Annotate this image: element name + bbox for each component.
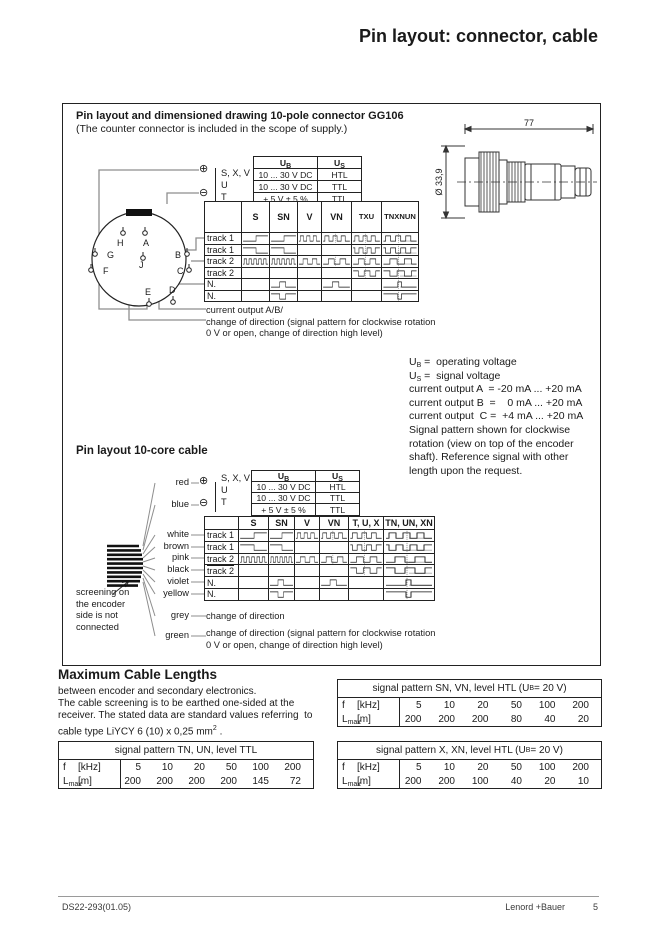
length-value: 40 (501, 774, 535, 788)
waveform-cell (382, 256, 419, 268)
title-text: signal pattern X, XN, level HTL (U (376, 745, 526, 756)
track-row-text: N. (207, 279, 216, 289)
waveform (295, 577, 319, 588)
footer-brand: Lenord +Bauer (505, 902, 565, 912)
wire-label: white (123, 529, 189, 539)
waveform (270, 291, 297, 302)
waveform (384, 577, 434, 588)
legend-line: shaft). Reference signal with other (409, 451, 583, 465)
waveform (269, 577, 294, 588)
power-cell: 10 ... 30 V DC (252, 493, 316, 504)
waveform (295, 554, 319, 565)
waveform-cell (239, 554, 269, 566)
waveform-cell (384, 530, 435, 542)
waveform (382, 245, 418, 256)
length-value: 200 (185, 774, 217, 788)
freq-row-label: f[kHz] (338, 760, 400, 774)
power-signal-labels: S, X, VUT (221, 472, 250, 508)
waveform (322, 291, 351, 302)
paragraph-line: receiver. The stated data are standard v… (58, 710, 312, 722)
waveform-cell (270, 291, 298, 303)
waveform (298, 291, 321, 302)
pin-contact (187, 268, 192, 273)
wire-label: blue (123, 499, 189, 509)
waveform-cell (384, 554, 435, 566)
waveform-cell (242, 233, 270, 245)
waveform-cell (295, 542, 320, 554)
legend-line: Signal pattern shown for clockwise (409, 424, 583, 438)
freq-value: 5 (121, 760, 153, 774)
pin-label: E (145, 287, 151, 297)
waveform (352, 256, 381, 267)
power-cell: 10 ... 30 V DC (252, 482, 316, 493)
datasheet-page: Pin layout: connector, cable Pin layout … (0, 0, 662, 936)
waveform-cell (242, 245, 270, 257)
length-value: 20 (534, 774, 568, 788)
pin-contact (185, 252, 190, 257)
waveform-cell (382, 245, 419, 257)
footer-page-number: 5 (593, 902, 598, 912)
waveform-cell (384, 542, 435, 554)
freq-table-body: f[kHz]5102050100200Lmax[m]20020020080402… (338, 698, 601, 726)
waveform-cell (269, 565, 295, 577)
waveform (352, 245, 381, 256)
waveform (242, 268, 269, 279)
waveform-cell (298, 291, 322, 303)
waveform-cell (320, 565, 349, 577)
waveform-cell (270, 268, 298, 280)
paragraph-text: between encoder and secondary electronic… (58, 686, 256, 697)
length-value: 200 (217, 774, 249, 788)
freq-value: 5 (400, 698, 434, 712)
screening-line: the encoder (76, 599, 129, 611)
waveform (295, 542, 319, 553)
row-symbol: f (342, 762, 357, 773)
symbol: f (63, 762, 66, 773)
symbol: U (409, 356, 417, 368)
waveform-cell (295, 589, 320, 601)
freq-value: 200 (568, 698, 602, 712)
plus-terminal-icon: ⊕ (199, 164, 208, 175)
legend-text: = signal voltage (421, 370, 500, 382)
power-signal-label: S, X, V (221, 472, 250, 484)
length-value: 72 (281, 774, 313, 788)
waveform-cell (382, 291, 419, 303)
waveform (298, 279, 321, 290)
row-symbol-text: f (63, 762, 66, 773)
legend-text: current output B = 0 mA ... +20 mA (409, 397, 582, 409)
length-value: 200 (434, 712, 468, 726)
title-text: signal pattern SN, VN, level HTL (U (372, 683, 529, 694)
wire-label: red (123, 477, 189, 487)
paragraph-text: receiver. The stated data are standard v… (58, 710, 312, 721)
pin-label: B (175, 250, 181, 260)
track-row-label: N. (205, 577, 239, 589)
row-unit: [m] (357, 714, 371, 725)
waveform-cell (349, 554, 384, 566)
waveform (295, 589, 319, 600)
waveform-cell (349, 530, 384, 542)
track-row-text: N. (207, 291, 216, 301)
pin-contact (93, 252, 98, 257)
freq-value: 100 (249, 760, 281, 774)
waveform (384, 530, 434, 541)
length-value: 200 (400, 774, 434, 788)
waveform-cell (322, 245, 352, 257)
row-unit: [m] (357, 776, 371, 787)
legend-text: current output C = +4 mA ... +20 mA (409, 410, 583, 422)
waveform-cell (298, 268, 322, 280)
power-signal-label: U (221, 179, 250, 191)
waveform-cell (269, 589, 295, 601)
footer-rule (58, 896, 599, 897)
length-value: 200 (400, 712, 434, 726)
waveform-cell (242, 268, 270, 280)
power-cell: 10 ... 30 V DC (254, 181, 318, 193)
signal-table-cable: SSNVVNT, U, XTN, UN, XNtrack 1track 1tra… (204, 516, 435, 601)
freq-table-body: f[kHz]5102050100200Lmax[m]20020020020014… (59, 760, 313, 788)
waveform-cell (352, 291, 382, 303)
power-table: UBUS10 ... 30 V DCHTL10 ... 30 V DCTTL+ … (251, 470, 360, 516)
signal-column-header: TN, UN, XN (384, 517, 435, 530)
power-header-cell: UB (252, 471, 316, 482)
voltage-symbol: US (332, 471, 343, 481)
waveform (322, 268, 351, 279)
waveform (242, 279, 269, 290)
waveform-cell (352, 233, 382, 245)
waveform-cell (322, 233, 352, 245)
screening-line: side is not (76, 610, 129, 622)
waveform-cell (352, 256, 382, 268)
waveform-cell (269, 554, 295, 566)
track-row-label: track 2 (205, 268, 242, 280)
pin-contact (171, 300, 176, 305)
waveform-cell (270, 245, 298, 257)
freq-value: 20 (467, 760, 501, 774)
waveform (269, 589, 294, 600)
signal-corner (205, 517, 239, 530)
freq-row-label: f[kHz] (59, 760, 121, 774)
row-unit: [kHz] (78, 762, 101, 773)
screening-line: screening on (76, 587, 129, 599)
waveform-cell (239, 542, 269, 554)
track-row-text: track 1 (207, 245, 234, 255)
legend-line: rotation (view on top of the encoder (409, 438, 583, 452)
signal-column-header: VN (322, 202, 352, 233)
waveform (384, 554, 434, 565)
signal-column-header: S (239, 517, 269, 530)
waveform-cell (322, 268, 352, 280)
waveform (298, 256, 321, 267)
waveform-cell (270, 233, 298, 245)
header-line: UN (405, 213, 416, 221)
paragraph-line: cable type LiYCY 6 (10) x 0,25 mm2 . (58, 723, 312, 739)
waveform (298, 233, 321, 244)
waveform-cell (320, 577, 349, 589)
paragraph-text: cable type LiYCY 6 (10) x 0,25 mm (58, 726, 213, 737)
waveform (384, 565, 434, 576)
waveform-cell (320, 589, 349, 601)
waveform-cell (239, 589, 269, 601)
waveform-cell (384, 589, 435, 601)
cable-drawing (105, 542, 145, 590)
minus-terminal-icon: ⊖ (199, 498, 208, 509)
paragraph-text: The cable screening is to be earthed one… (58, 698, 294, 709)
waveform (320, 577, 348, 588)
waveform-cell (349, 565, 384, 577)
pin-label: J (139, 260, 144, 270)
waveform (270, 245, 297, 256)
waveform (349, 554, 383, 565)
signal-column-header: TNXNUN (382, 202, 419, 233)
waveform (382, 291, 418, 302)
pin-label: C (177, 266, 184, 276)
waveform (242, 291, 269, 302)
waveform (239, 565, 268, 576)
note-line: change of direction (signal pattern for … (206, 317, 435, 329)
waveform-cell (384, 577, 435, 589)
freq-value: 100 (534, 698, 568, 712)
waveform-cell (295, 577, 320, 589)
waveform (322, 245, 351, 256)
waveform (349, 589, 383, 600)
orientation-mark (126, 209, 152, 216)
signal-column-header: SN (269, 517, 295, 530)
waveform (382, 256, 418, 267)
legend-text: Signal pattern shown for clockwise (409, 424, 570, 436)
connector-notes: current output A/B/change of direction (… (206, 305, 435, 340)
waveform (239, 577, 268, 588)
waveform-cell (239, 530, 269, 542)
length-value: 10 (568, 774, 602, 788)
freq-value: 10 (434, 698, 468, 712)
track-row-label: N. (205, 279, 242, 291)
cable-note-green: change of direction (signal pattern for … (206, 628, 435, 651)
signal-column-header: T, U, X (349, 517, 384, 530)
wire-label: grey (123, 610, 189, 620)
length-value: 80 (501, 712, 535, 726)
waveform (320, 589, 348, 600)
track-row-text: track 2 (207, 566, 234, 576)
row-symbol: Lmax (342, 714, 357, 725)
voltage-symbol: US (334, 158, 345, 168)
legend-line: UB = operating voltage (409, 356, 583, 370)
waveform-cell (320, 542, 349, 554)
track-row-label: track 1 (205, 542, 239, 554)
legend-text: current output A = -20 mA ... +20 mA (409, 383, 582, 395)
track-row-text: track 2 (207, 268, 234, 278)
waveform (295, 565, 319, 576)
waveform (352, 233, 381, 244)
waveform (349, 577, 383, 588)
freq-row-label: Lmax[m] (338, 774, 400, 788)
title-text: = 20 V) (530, 745, 563, 756)
track-row-text: track 1 (207, 233, 234, 243)
paragraph-tail: . (217, 726, 223, 737)
track-row-text: track 2 (207, 554, 234, 564)
waveform (382, 233, 418, 244)
track-row-label: track 1 (205, 530, 239, 542)
waveform-cell (298, 245, 322, 257)
legend-line: current output B = 0 mA ... +20 mA (409, 397, 583, 411)
power-header-cell: UB (254, 157, 318, 169)
paragraph-line: The cable screening is to be earthed one… (58, 698, 312, 710)
track-row-label: N. (205, 589, 239, 601)
waveform-cell (298, 256, 322, 268)
length-value: 200 (467, 712, 501, 726)
voltage-symbol: UB (409, 356, 421, 368)
waveform (352, 291, 381, 302)
waveform-cell (382, 279, 419, 291)
track-row-label: N. (205, 291, 242, 303)
freq-value: 200 (281, 760, 313, 774)
cable-note-grey: change of direction (206, 611, 285, 623)
waveform-cell (270, 279, 298, 291)
power-table: UBUS10 ... 30 V DCHTL10 ... 30 V DCTTL+ … (253, 156, 362, 206)
freq-row-label: Lmax[m] (59, 774, 121, 788)
voltage-symbol: UB (278, 471, 289, 481)
track-row-text: track 2 (207, 256, 234, 266)
signal-column-header: SN (270, 202, 298, 233)
waveform (269, 554, 294, 565)
track-row-label: track 2 (205, 565, 239, 577)
track-row-text: N. (207, 578, 216, 588)
waveform-cell (242, 291, 270, 303)
legend-line: current output A = -20 mA ... +20 mA (409, 383, 583, 397)
row-unit: [kHz] (357, 700, 380, 711)
waveform-cell (242, 256, 270, 268)
freq-value: 100 (534, 760, 568, 774)
waveform-cell (295, 530, 320, 542)
note-line: 0 V or open, change of direction high le… (206, 328, 435, 340)
header-line: TN (384, 213, 394, 221)
freq-row-label: f[kHz] (338, 698, 400, 712)
legend-text: shaft). Reference signal with other (409, 451, 568, 463)
waveform (349, 565, 383, 576)
waveform (270, 233, 297, 244)
pin-label: H (117, 238, 124, 248)
row-unit: [m] (78, 776, 92, 787)
length-value: 20 (568, 712, 602, 726)
waveform (242, 256, 269, 267)
waveform-cell (239, 577, 269, 589)
voltage-symbol: US (409, 370, 421, 382)
pin-contact (141, 256, 146, 261)
screening-line: connected (76, 622, 129, 634)
wire-label: green (123, 630, 189, 640)
freq-value: 10 (434, 760, 468, 774)
freq-value: 5 (400, 760, 434, 774)
waveform (270, 256, 297, 267)
paragraph-line: between encoder and secondary electronic… (58, 686, 312, 698)
waveform (382, 268, 418, 279)
footer-doc-number: DS22-293(01.05) (62, 902, 131, 912)
row-symbol-text: f (342, 700, 345, 711)
waveform (239, 530, 268, 541)
freq-value: 50 (501, 698, 535, 712)
cable-heading: Pin layout 10-core cable (76, 445, 208, 457)
screening-note: screening onthe encoderside is notconnec… (76, 587, 129, 633)
waveform (270, 279, 297, 290)
track-row-label: track 1 (205, 245, 242, 257)
power-signal-label: U (221, 484, 250, 496)
row-symbol: f (63, 762, 78, 773)
signal-column-header: VN (320, 517, 349, 530)
power-cell: + 5 V ± 5 % (252, 504, 316, 515)
waveform (298, 268, 321, 279)
freq-table-title: signal pattern X, XN, level HTL (UB= 20 … (338, 742, 601, 760)
header-line: XN (394, 213, 405, 221)
waveform-cell (352, 279, 382, 291)
waveform-cell (352, 245, 382, 257)
power-signal-labels: S, X, VUT (221, 167, 250, 203)
waveform (384, 542, 434, 553)
pin-contact (121, 231, 126, 236)
waveform (352, 268, 381, 279)
legend-block: UB = operating voltageUS = signal voltag… (409, 356, 583, 478)
note-line: current output A/B/ (206, 305, 435, 317)
freq-value: 50 (501, 760, 535, 774)
waveform (239, 589, 268, 600)
waveform (322, 279, 351, 290)
freq-table-tn-un: signal pattern TN, UN, level TTLf[kHz]51… (58, 741, 314, 789)
waveform (270, 268, 297, 279)
freq-value: 10 (153, 760, 185, 774)
waveform (320, 542, 348, 553)
row-unit: [kHz] (357, 762, 380, 773)
waveform (384, 589, 434, 600)
pin-diagram: HAGBFCEDJ (77, 202, 193, 314)
waveform-cell (322, 279, 352, 291)
row-symbol: Lmax (63, 776, 78, 787)
row-symbol: Lmax (342, 776, 357, 787)
waveform-cell (298, 233, 322, 245)
freq-table-title: signal pattern TN, UN, level TTL (59, 742, 313, 760)
waveform (320, 530, 348, 541)
waveform-cell (270, 256, 298, 268)
row-symbol: f (342, 700, 357, 711)
freq-table-title: signal pattern SN, VN, level HTL (UB= 20… (338, 680, 601, 698)
waveform-cell (242, 279, 270, 291)
page-title: Pin layout: connector, cable (359, 26, 598, 47)
symbol: U (409, 370, 417, 382)
note-line: change of direction (signal pattern for … (206, 628, 435, 640)
length-value: 145 (249, 774, 281, 788)
waveform (269, 530, 294, 541)
waveform-cell (382, 233, 419, 245)
power-signal-label: S, X, V (221, 167, 250, 179)
waveform (295, 530, 319, 541)
signal-corner (205, 202, 242, 233)
waveform (320, 554, 348, 565)
title-text: signal pattern TN, UN, level TTL (115, 745, 257, 756)
waveform-cell (295, 554, 320, 566)
title-text: = 20 V) (534, 683, 567, 694)
waveform (320, 565, 348, 576)
power-cell: HTL (318, 169, 361, 181)
waveform (322, 256, 351, 267)
symbol: f (342, 700, 345, 711)
pin-contact (89, 268, 94, 273)
waveform-cell (239, 565, 269, 577)
length-value: 100 (467, 774, 501, 788)
waveform-cell (295, 565, 320, 577)
signal-column-header: V (298, 202, 322, 233)
waveform (352, 279, 381, 290)
pin-contact (143, 231, 148, 236)
signal-column-header: S (242, 202, 270, 233)
waveform-cell (269, 530, 295, 542)
